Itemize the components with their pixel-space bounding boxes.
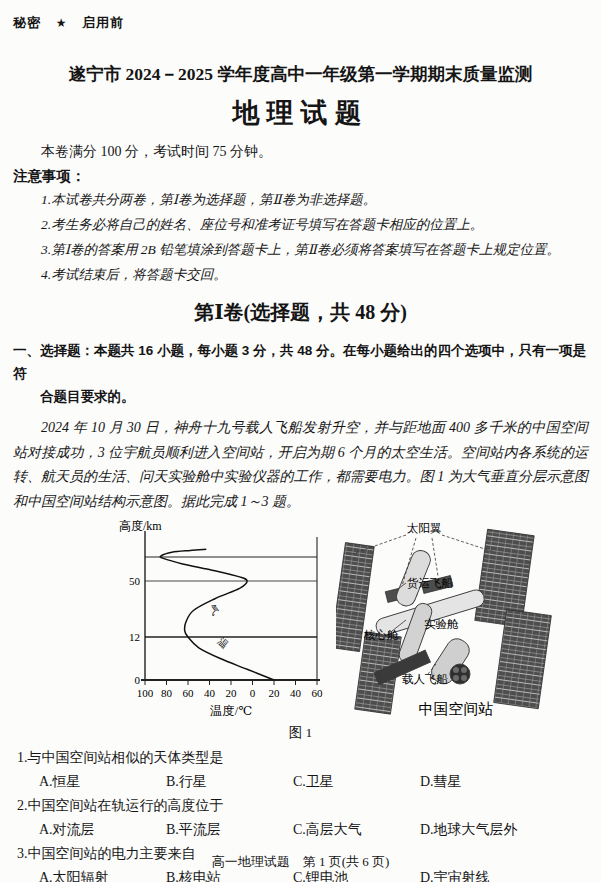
question-stem: 与中国空间站相似的天体类型是 bbox=[28, 750, 224, 765]
option-item: C.高层大气 bbox=[293, 818, 420, 842]
star-icon: ★ bbox=[56, 16, 68, 30]
curve-label-char: 气 bbox=[206, 602, 221, 617]
svg-text:40: 40 bbox=[204, 687, 216, 699]
svg-text:60: 60 bbox=[183, 687, 195, 699]
svg-text:20: 20 bbox=[226, 687, 238, 699]
option-item: D.彗星 bbox=[420, 770, 462, 794]
station-caption: 中国空间站 bbox=[419, 701, 494, 717]
figure-1: 0 12 50 100 80 60 40 20 0 20 40 60 bbox=[13, 516, 588, 722]
question-1-options: A.恒星 B.行星 C.卫星 D.彗星 bbox=[13, 770, 588, 794]
subject-title: 地理试题 bbox=[13, 95, 588, 131]
intro-line-2: 合题目要求的。 bbox=[13, 385, 588, 408]
core-module-label: 核心舱 bbox=[363, 629, 399, 641]
x-axis-label: 温度/℃ bbox=[210, 704, 252, 718]
temperature-curve bbox=[160, 549, 274, 680]
classification-label: 秘密 bbox=[13, 15, 41, 30]
note-item-4: 4.考试结束后，将答题卡交回。 bbox=[13, 266, 588, 284]
option-item: C.卫星 bbox=[293, 770, 420, 794]
altitude-temperature-chart: 0 12 50 100 80 60 40 20 0 20 40 60 bbox=[105, 516, 349, 722]
y-axis-label: 高度/km bbox=[119, 519, 162, 533]
curve-label-char: 温 bbox=[216, 636, 231, 651]
question-2-options: A.对流层 B.平流层 C.高层大气 D.地球大气层外 bbox=[13, 818, 588, 842]
y-tick-label: 0 bbox=[135, 674, 141, 686]
svg-text:100: 100 bbox=[137, 687, 154, 699]
x-tick-labels: 100 80 60 40 20 0 20 40 60 bbox=[137, 687, 323, 699]
question-number: 1. bbox=[17, 750, 28, 765]
question-stem: 中国空间站在轨运行的高度位于 bbox=[28, 798, 224, 813]
solar-wing-label: 太阳翼 bbox=[407, 522, 442, 534]
notes-heading: 注意事项： bbox=[13, 167, 588, 186]
note-item-3: 3.第Ⅰ卷的答案用 2B 铅笔填涂到答题卡上，第Ⅱ卷必须将答案填写在答题卡上规定… bbox=[13, 241, 588, 259]
section1-intro: 一、选择题：本题共 16 小题，每小题 3 分，共 48 分。在每小题给出的四个… bbox=[13, 339, 588, 408]
y-tick-label: 50 bbox=[129, 575, 141, 587]
crew-ship-label: 载人飞船 bbox=[402, 673, 449, 685]
classification-banner: 秘密 ★ 启用前 bbox=[13, 14, 588, 32]
lab-module-label: 实验舱 bbox=[424, 618, 459, 630]
intro-line-1: 一、选择题：本题共 16 小题，每小题 3 分，共 48 分。在每小题给出的四个… bbox=[13, 339, 588, 385]
stage-label: 启用前 bbox=[82, 15, 124, 30]
figure-caption: 图 1 bbox=[13, 724, 588, 742]
page-footer: 高一地理试题 第 1 页(共 6 页) bbox=[0, 853, 601, 871]
option-item: A.对流层 bbox=[39, 818, 166, 842]
question-2: 2.中国空间站在轨运行的高度位于 bbox=[13, 794, 588, 818]
cargo-ship-label: 货运飞船 bbox=[407, 577, 454, 590]
option-item: B.行星 bbox=[166, 770, 293, 794]
exam-page: 秘密 ★ 启用前 遂宁市 2024－2025 学年度高中一年级第一学期期末质量监… bbox=[0, 0, 601, 882]
section1-title: 第Ⅰ卷(选择题，共 48 分) bbox=[13, 299, 588, 326]
note-item-2: 2.考生务必将自己的姓名、座位号和准考证号填写在答题卡相应的位置上。 bbox=[13, 216, 588, 234]
svg-text:80: 80 bbox=[161, 687, 173, 699]
passage-text: 2024 年 10 月 30 日，神舟十九号载人飞船发射升空，并与距地面 400… bbox=[13, 416, 588, 514]
option-item: A.恒星 bbox=[39, 770, 166, 794]
option-item: D.地球大气层外 bbox=[420, 818, 518, 842]
svg-text:20: 20 bbox=[269, 687, 281, 699]
question-number: 2. bbox=[17, 798, 28, 813]
svg-text:40: 40 bbox=[290, 687, 302, 699]
space-station-figure: 太阳翼 货运飞船 实验舱 核心舱 载人飞船 中国空间站 bbox=[336, 516, 598, 722]
option-item: B.平流层 bbox=[166, 818, 293, 842]
svg-text:0: 0 bbox=[250, 687, 256, 699]
y-tick-label: 12 bbox=[129, 631, 140, 643]
exam-info: 本卷满分 100 分，考试时间 75 分钟。 bbox=[13, 143, 588, 161]
question-1: 1.与中国空间站相似的天体类型是 bbox=[13, 746, 588, 770]
svg-text:60: 60 bbox=[312, 687, 324, 699]
note-item-1: 1.本试卷共分两卷，第Ⅰ卷为选择题，第Ⅱ卷为非选择题。 bbox=[13, 191, 588, 209]
exam-session-title: 遂宁市 2024－2025 学年度高中一年级第一学期期末质量监测 bbox=[13, 62, 588, 86]
